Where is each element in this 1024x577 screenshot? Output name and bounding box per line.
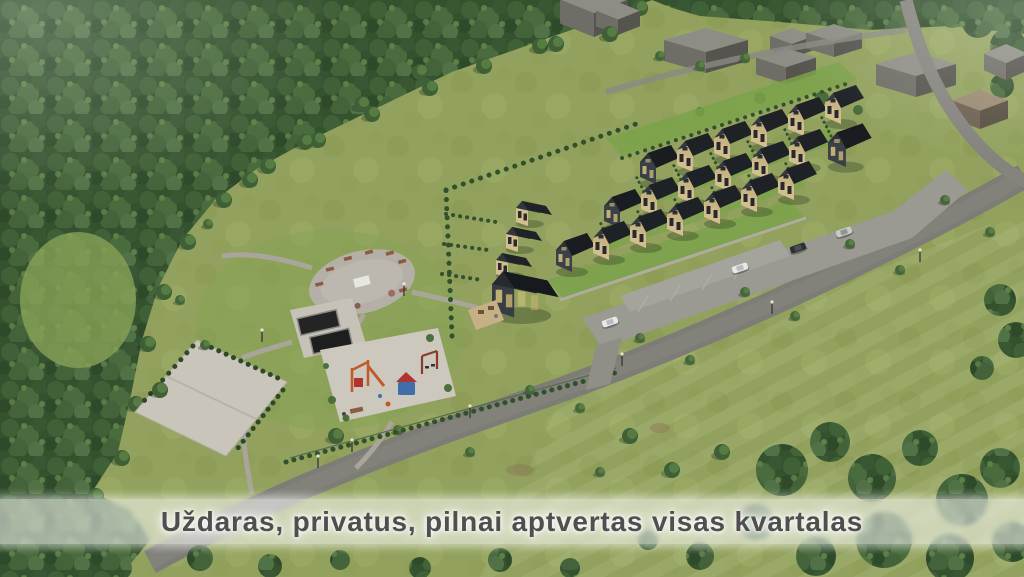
forest-glade xyxy=(20,232,136,368)
play-house xyxy=(398,382,415,395)
caption-bar: Uždaras, privatus, pilnai aptvertas visa… xyxy=(0,499,1024,544)
aerial-render: Uždaras, privatus, pilnai aptvertas visa… xyxy=(0,0,1024,577)
caption-text: Uždaras, privatus, pilnai aptvertas visa… xyxy=(161,506,863,538)
scene-svg xyxy=(0,0,1024,577)
